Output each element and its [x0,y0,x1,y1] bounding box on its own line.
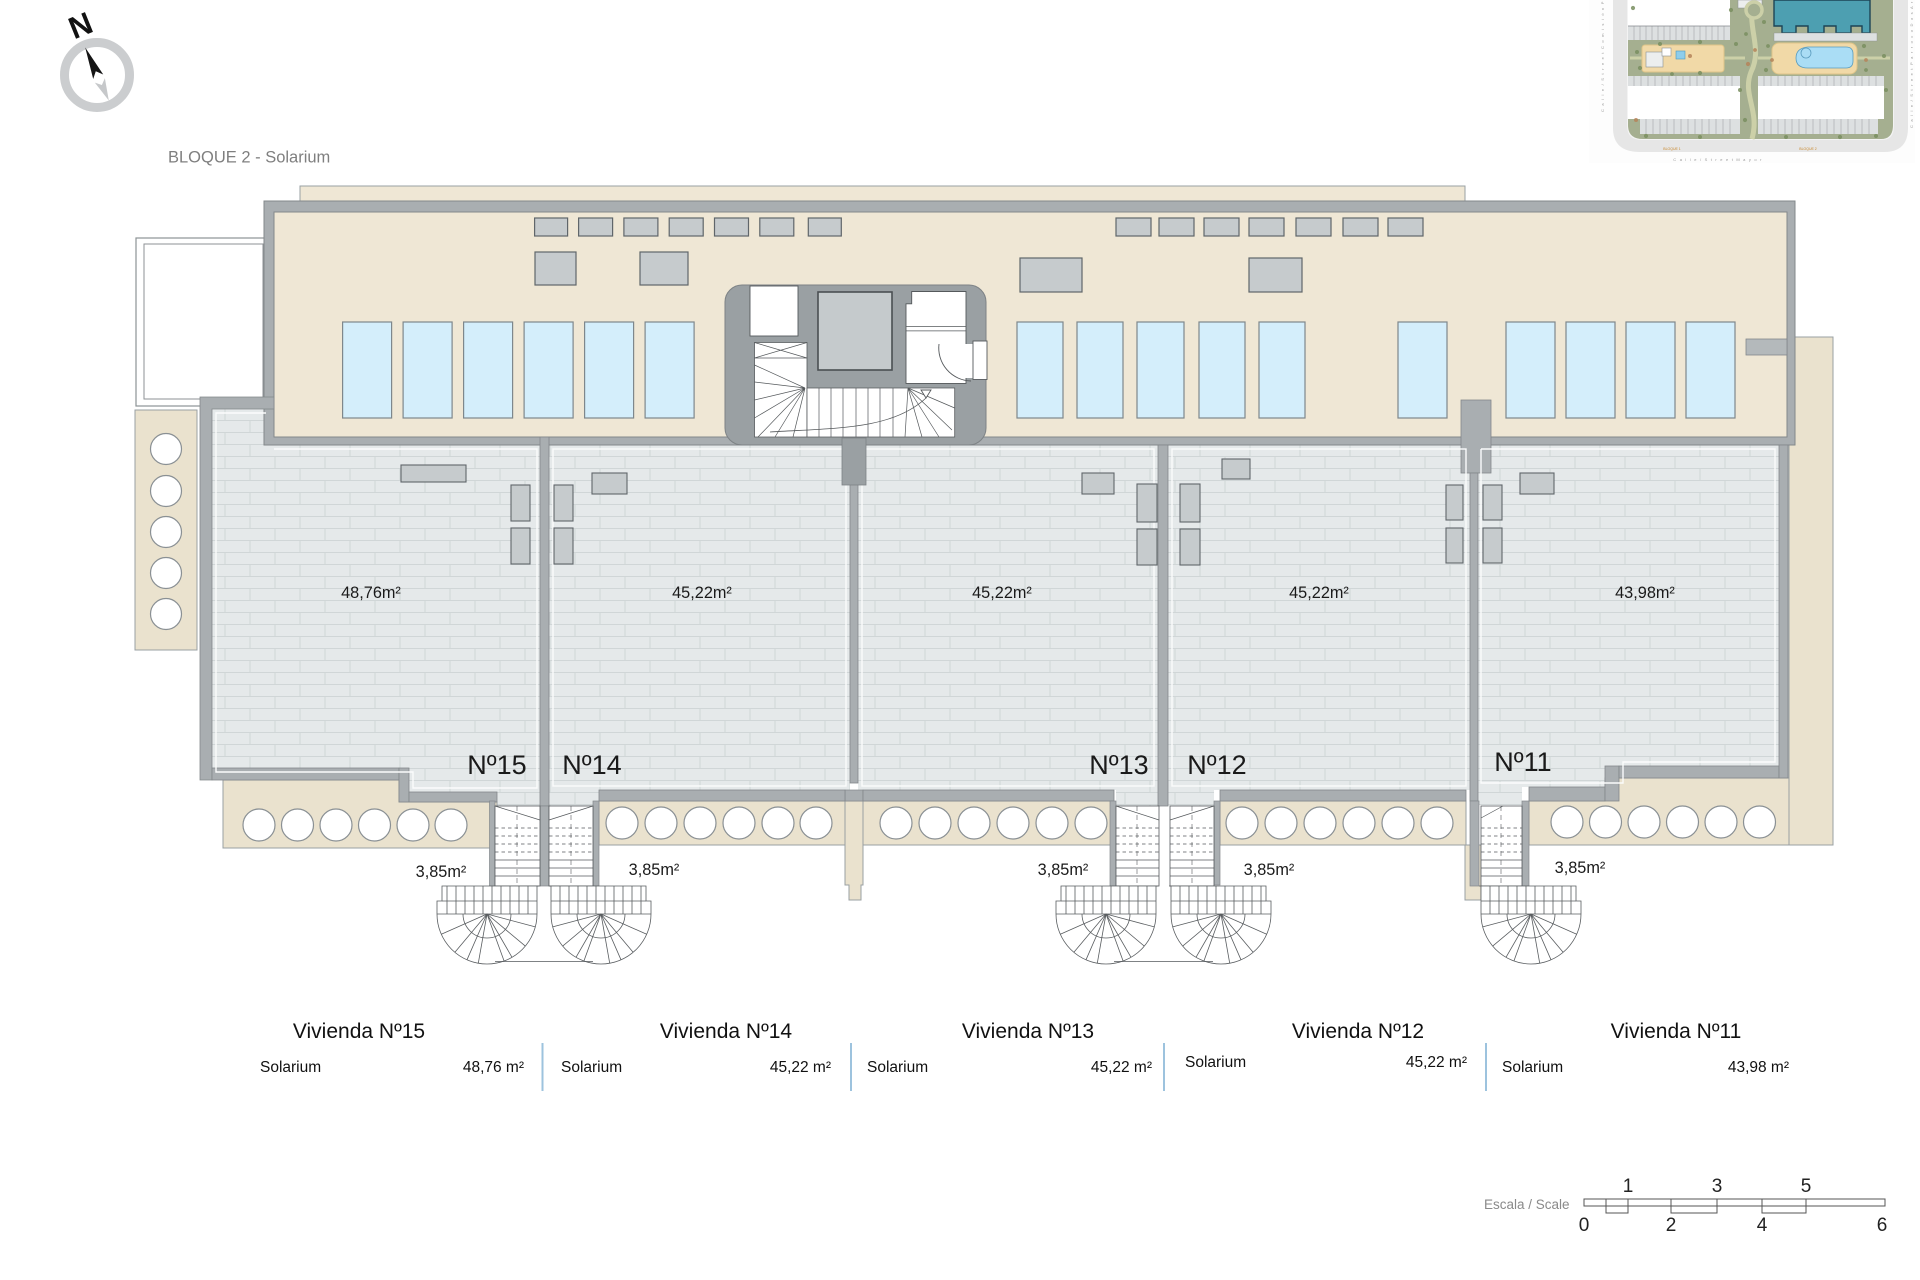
svg-text:Escala / Scale: Escala / Scale [1484,1197,1570,1212]
svg-text:5: 5 [1801,1176,1812,1197]
svg-text:C a l l e / S t r e e t M: C a l l e / S t r e e t M a y o r [1673,157,1762,162]
svg-text:2: 2 [1666,1215,1677,1236]
svg-text:Nº13: Nº13 [1089,750,1148,780]
svg-text:Vivienda Nº11: Vivienda Nº11 [1611,1020,1742,1043]
svg-text:45,22 m²: 45,22 m² [1406,1054,1467,1071]
svg-text:Nº15: Nº15 [467,750,526,780]
svg-text:Nº12: Nº12 [1187,750,1246,780]
svg-text:Vivienda Nº14: Vivienda Nº14 [660,1020,793,1043]
svg-text:43,98m²: 43,98m² [1615,584,1675,602]
svg-text:Solarium: Solarium [867,1059,928,1076]
svg-text:3,85m²: 3,85m² [416,863,467,881]
svg-text:48,76m²: 48,76m² [341,584,401,602]
svg-text:Nº14: Nº14 [562,750,621,780]
svg-text:45,22m²: 45,22m² [972,584,1032,602]
svg-text:Solarium: Solarium [1502,1059,1563,1076]
svg-text:3,85m²: 3,85m² [1038,861,1089,879]
svg-text:45,22m²: 45,22m² [672,584,732,602]
svg-text:3,85m²: 3,85m² [1244,861,1295,879]
svg-text:45,22 m²: 45,22 m² [770,1059,831,1076]
svg-text:C a l l e / S t r e e t P: C a l l e / S t r e e t P a r r o c o D … [1909,0,1914,128]
svg-text:Nº11: Nº11 [1494,747,1551,777]
svg-text:45,22 m²: 45,22 m² [1091,1059,1152,1076]
svg-text:3,85m²: 3,85m² [629,861,680,879]
svg-text:BLOQUE 1: BLOQUE 1 [1663,147,1681,151]
svg-text:Vivienda Nº13: Vivienda Nº13 [962,1020,1094,1043]
svg-text:C a l l e / S t r e e t C: C a l l e / S t r e e t C o m i s i ó n … [1600,0,1605,112]
svg-text:3: 3 [1712,1176,1723,1197]
svg-text:BLOQUE 2: BLOQUE 2 [1799,147,1817,151]
svg-text:45,22m²: 45,22m² [1289,584,1349,602]
svg-text:3,85m²: 3,85m² [1555,859,1606,877]
svg-text:1: 1 [1623,1176,1634,1197]
svg-text:6: 6 [1877,1215,1888,1236]
svg-text:43,98 m²: 43,98 m² [1728,1059,1789,1076]
svg-text:Solarium: Solarium [561,1059,622,1076]
svg-text:Solarium: Solarium [260,1059,321,1076]
svg-text:4: 4 [1757,1215,1768,1236]
svg-text:Vivienda Nº12: Vivienda Nº12 [1292,1020,1424,1043]
svg-text:48,76 m²: 48,76 m² [463,1059,524,1076]
svg-text:0: 0 [1579,1215,1590,1236]
svg-text:Vivienda Nº15: Vivienda Nº15 [293,1020,425,1043]
svg-text:Solarium: Solarium [1185,1054,1246,1071]
svg-text:BLOQUE 2 - Solarium: BLOQUE 2 - Solarium [168,149,330,167]
